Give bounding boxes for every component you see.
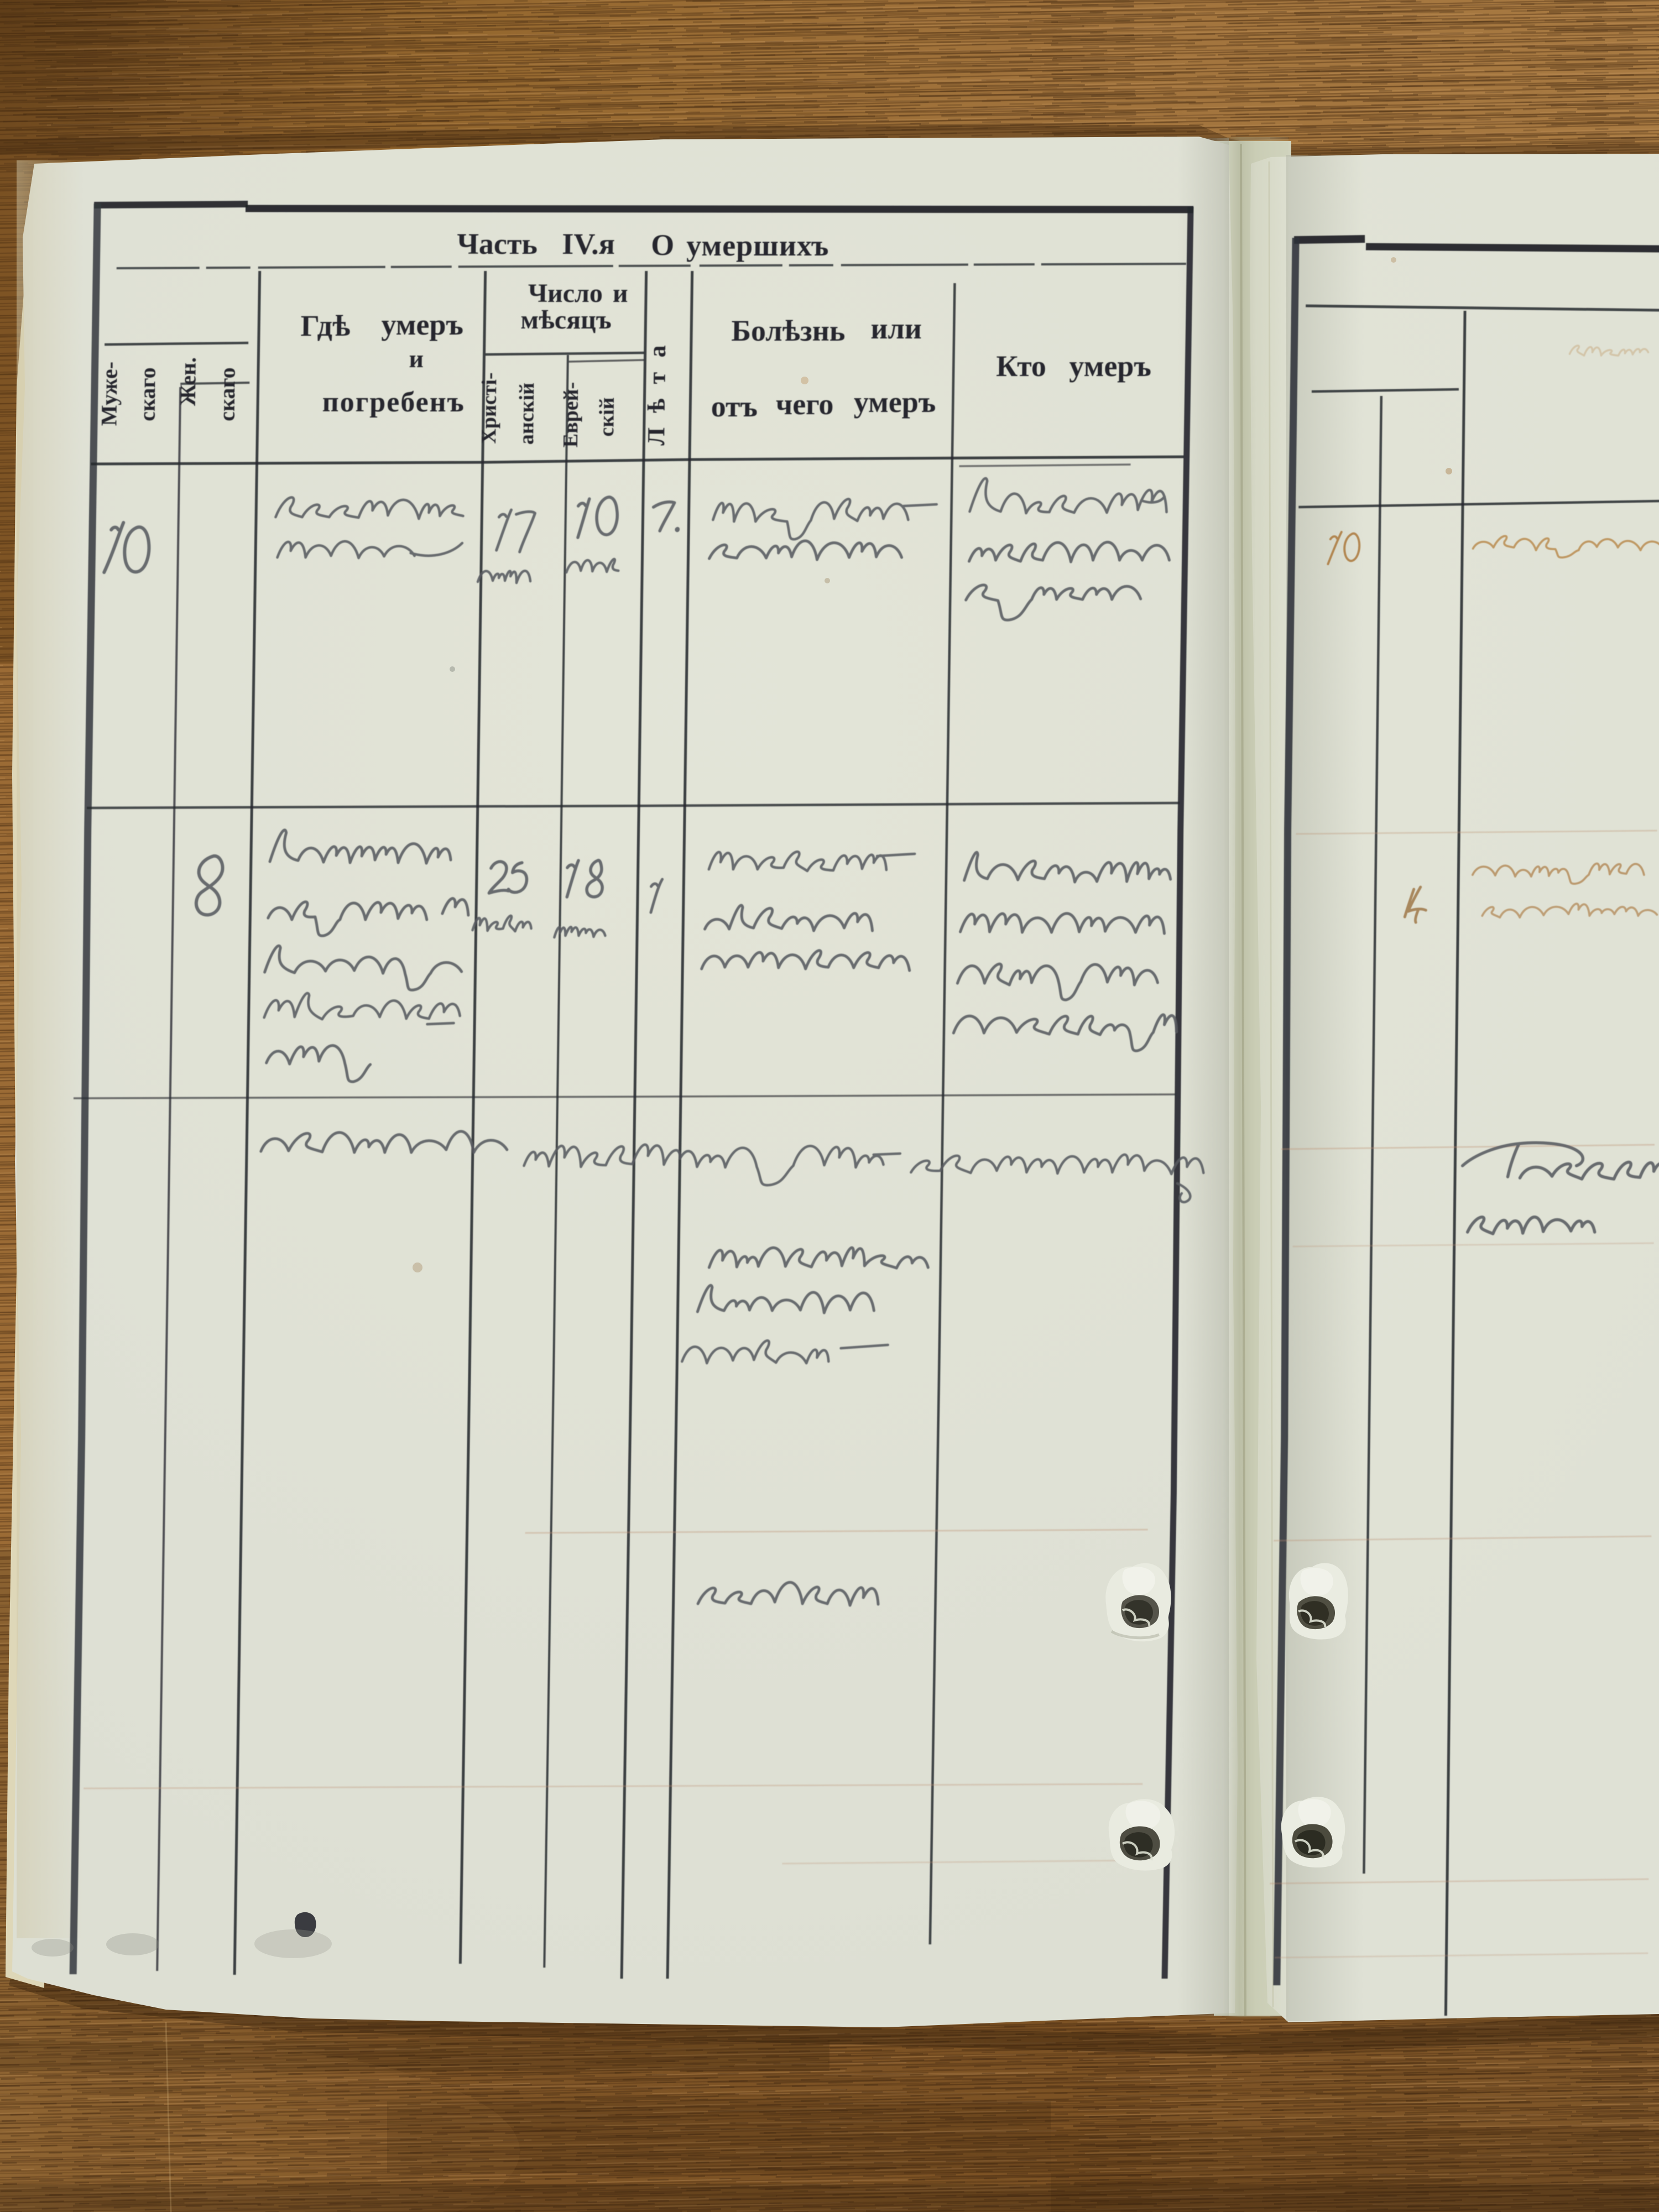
svg-text:Кто умеръ: Кто умеръ — [996, 349, 1151, 383]
svg-text:скій: скій — [595, 397, 619, 436]
svg-text:Еврей-: Еврей- — [559, 382, 583, 447]
svg-text:анскій: анскій — [515, 383, 539, 445]
svg-text:умершихъ: умершихъ — [686, 229, 830, 262]
svg-text:умеръ: умеръ — [381, 308, 463, 341]
svg-text:О: О — [651, 228, 675, 262]
svg-text:погребенъ: погребенъ — [322, 387, 465, 418]
svg-text:Гдѣ: Гдѣ — [300, 309, 351, 342]
svg-text:Христі-: Христі- — [477, 372, 502, 444]
svg-text:скаго: скаго — [134, 367, 160, 421]
svg-text:и: и — [409, 345, 424, 373]
svg-text:отъ: отъ — [711, 390, 758, 423]
svg-text:мѣсяцъ: мѣсяцъ — [520, 305, 612, 335]
svg-text:чего: чего — [775, 388, 833, 421]
svg-text:Лѣта: Лѣта — [643, 331, 671, 445]
svg-text:Жен.: Жен. — [175, 357, 201, 406]
svg-text:Часть: Часть — [457, 227, 538, 260]
svg-text:Болѣзнь: Болѣзнь — [731, 314, 846, 347]
svg-text:или: или — [870, 312, 922, 345]
svg-text:умеръ: умеръ — [854, 385, 936, 419]
svg-text:скаго: скаго — [214, 367, 239, 421]
svg-text:Число и: Число и — [528, 279, 628, 308]
svg-text:IV.я: IV.я — [562, 227, 615, 260]
svg-text:Муже-: Муже- — [96, 362, 122, 426]
